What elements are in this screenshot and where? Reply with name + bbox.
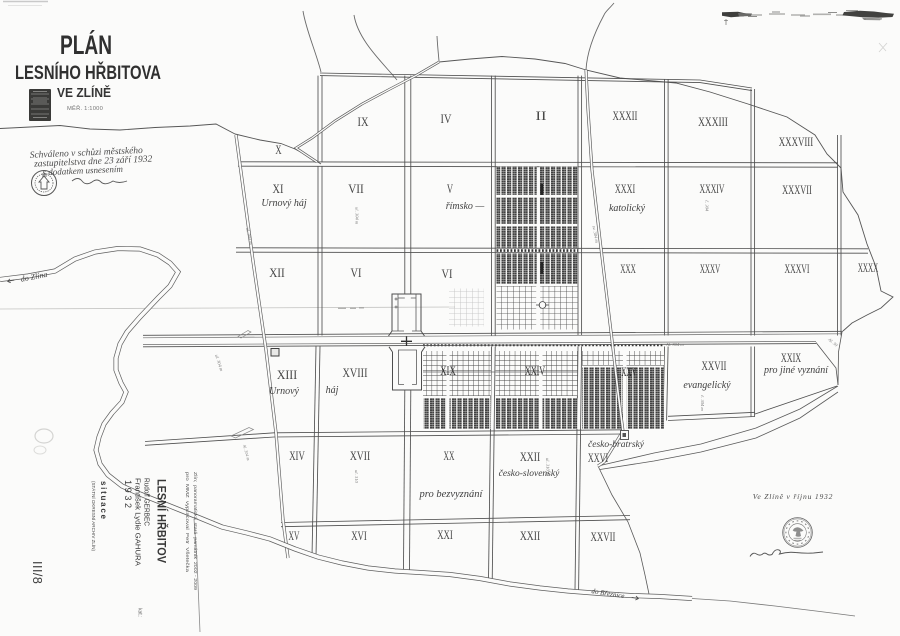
svg-text:VII: VII — [348, 181, 364, 196]
svg-text:Ve Zlíně v říjnu 1932: Ve Zlíně v říjnu 1932 — [753, 492, 834, 501]
svg-text:LESNÍHO HŘBITOVA: LESNÍHO HŘBITOVA — [15, 62, 161, 84]
svg-text:(STÁTNÍ OKRESNÍ ARCHIV ZLÍN): (STÁTNÍ OKRESNÍ ARCHIV ZLÍN) — [91, 481, 97, 551]
svg-text:XXXX: XXXX — [858, 260, 879, 275]
svg-text:XXX: XXX — [620, 261, 636, 276]
svg-text:XXVI: XXVI — [588, 450, 608, 465]
svg-text:XVII: XVII — [350, 448, 370, 463]
svg-text:česko-bratrský: česko-bratrský — [588, 440, 645, 450]
svg-text:evangelický: evangelický — [683, 380, 731, 391]
svg-text:XIX: XIX — [440, 363, 456, 378]
svg-text:XXXV: XXXV — [700, 261, 721, 276]
svg-text:II: II — [536, 108, 547, 123]
svg-text:VI: VI — [351, 265, 362, 280]
svg-text:ul. 304 m: ul. 304 m — [355, 207, 360, 225]
svg-text:XIV: XIV — [289, 448, 305, 463]
svg-text:Urnový háj: Urnový háj — [261, 198, 306, 209]
svg-text:č. 304: č. 304 — [705, 200, 710, 212]
svg-text:pro bezvyznání: pro bezvyznání — [419, 489, 484, 500]
svg-text:XXVII: XXVII — [591, 529, 616, 544]
svg-text:III/8: III/8 — [30, 561, 44, 584]
svg-text:LESNÍ HŘBITOV: LESNÍ HŘBITOV — [155, 479, 170, 563]
svg-text:XXXVI: XXXVI — [785, 261, 810, 276]
svg-text:X: X — [275, 142, 282, 157]
svg-text:VE ZLÍNĚ: VE ZLÍNĚ — [57, 85, 111, 100]
svg-text:IV: IV — [441, 111, 452, 126]
svg-text:PLÁN: PLÁN — [60, 29, 112, 60]
svg-text:VI: VI — [442, 266, 453, 281]
svg-text:římsko —: římsko — — [446, 201, 485, 212]
svg-text:č. 304 m: č. 304 m — [700, 395, 705, 411]
svg-text:katolický: katolický — [609, 203, 646, 214]
svg-text:XXXIV: XXXIV — [700, 181, 725, 196]
svg-text:XVI: XVI — [351, 528, 367, 543]
svg-text:česko-slovenský: česko-slovenský — [499, 469, 560, 479]
svg-text:XXIV: XXIV — [525, 363, 546, 378]
svg-text:XXV: XXV — [621, 364, 637, 379]
svg-text:pro jiné vyznání: pro jiné vyznání — [763, 365, 829, 376]
svg-text:IX: IX — [358, 114, 369, 129]
svg-text:XXXIII: XXXIII — [698, 114, 728, 129]
svg-text:XXI: XXI — [437, 527, 453, 542]
svg-text:XXVII: XXVII — [702, 358, 727, 373]
svg-text:XI: XI — [273, 181, 284, 196]
svg-text:XXXI: XXXI — [615, 181, 635, 196]
svg-text:V: V — [447, 181, 454, 196]
svg-text:XXII: XXII — [520, 449, 540, 464]
svg-text:XV: XV — [289, 528, 300, 543]
svg-text:Urnový: Urnový — [269, 386, 300, 397]
svg-text:XXIX: XXIX — [781, 350, 802, 365]
svg-text:situace: situace — [99, 481, 108, 520]
svg-text:XX: XX — [444, 448, 455, 463]
svg-text:pro MMZ vypracoval Petr Vš: pro MMZ vypracoval Petr Všetečka — [185, 472, 190, 573]
svg-text:XXXII: XXXII — [613, 108, 638, 123]
svg-text:háj: háj — [326, 385, 339, 396]
svg-text:XXII: XXII — [520, 528, 540, 543]
svg-text:František Lydie GAHURA: František Lydie GAHURA — [134, 478, 143, 566]
svg-text:XXXVIII: XXXVIII — [779, 134, 813, 149]
svg-text:Zlín; panoramatická stará p: Zlín; panoramatická stará památník 2002 … — [193, 472, 198, 591]
svg-text:Rudolf GERBEC: Rudolf GERBEC — [143, 478, 152, 527]
svg-text:Al. 304 m: Al. 304 m — [665, 342, 684, 347]
svg-text:XII: XII — [269, 265, 285, 280]
svg-text:XIII: XIII — [277, 367, 297, 382]
svg-text:ul. 310: ul. 310 — [354, 470, 359, 483]
svg-text:kat.:: kat.: — [137, 608, 143, 617]
svg-text:XXXVII: XXXVII — [782, 182, 812, 197]
svg-text:MĚŘ. 1:1000: MĚŘ. 1:1000 — [67, 104, 103, 112]
svg-text:XVIII: XVIII — [343, 365, 368, 380]
